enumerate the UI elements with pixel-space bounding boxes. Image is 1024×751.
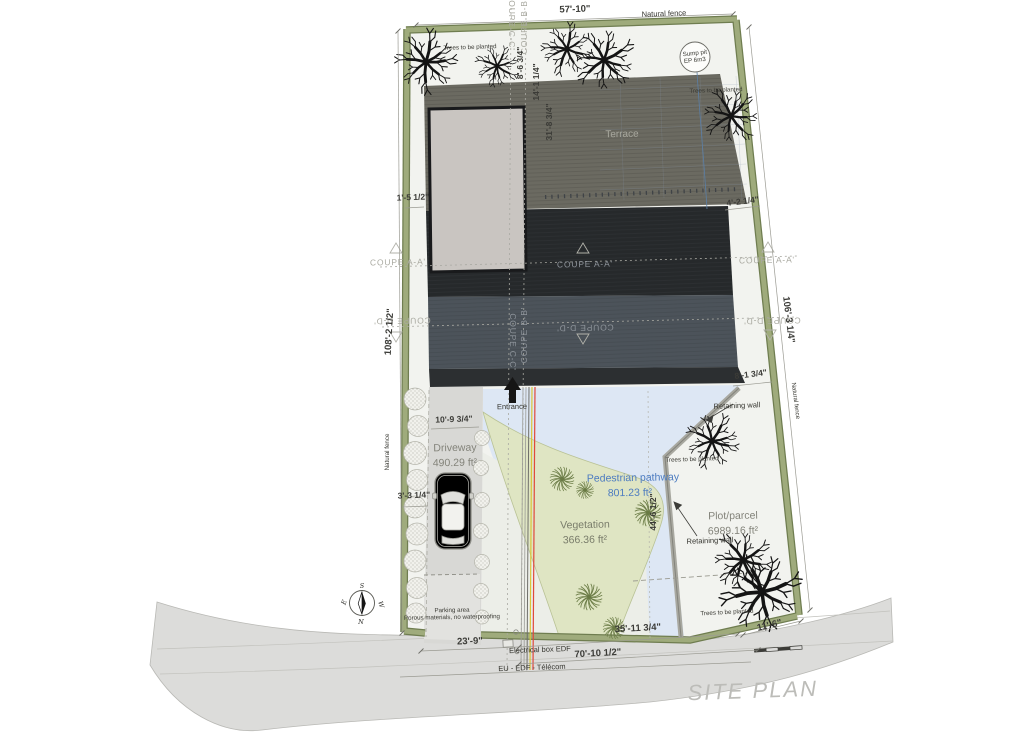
dim-driveway-width: 10'-9 3/4" xyxy=(435,413,473,424)
coupe-aa-right-label: COUPE A-A' xyxy=(739,255,795,266)
pathway-name-label: Pedestrian pathway xyxy=(587,471,680,485)
coupe-cc-top-label: COUPE C-C' xyxy=(507,0,517,51)
dim-driveway-side: 3'-3 1/4" xyxy=(397,489,430,500)
compass-rose: S N E W xyxy=(339,582,386,626)
pathway-area-label: 801.23 ft² xyxy=(608,487,653,500)
coupe-bb-mid-label: COUPE B-B' xyxy=(519,307,529,363)
coupe-cc-mid-label: COUPE C-C' xyxy=(508,313,518,370)
compass-east: E xyxy=(339,598,349,606)
retaining-wall-lower-label: Retaining wall xyxy=(686,535,733,546)
dim-top-width: 57'-10" xyxy=(559,3,590,15)
driveway-area-label: 490.29 ft² xyxy=(433,457,478,470)
retaining-wall-upper-label: Retaining wall xyxy=(713,400,760,411)
skylight xyxy=(429,107,526,272)
plot-name-label: Plot/parcel xyxy=(708,510,758,523)
page-title: SITE PLAN xyxy=(687,676,818,706)
dim-terrace-offset-b: 14'-1 1/4" xyxy=(531,63,541,100)
entrance-label: Entrance xyxy=(497,402,527,412)
coupe-bb-top-label: COUPE B-B' xyxy=(519,0,529,54)
natural-fence-left-label: Natural fence xyxy=(384,433,391,470)
coupe-aa-left-label: COUPE A-A' xyxy=(370,257,426,268)
dim-terrace-depth: 31'-8 3/4" xyxy=(544,103,554,140)
vegetation-name-label: Vegetation xyxy=(560,519,610,532)
terrace-label: Terrace xyxy=(605,129,639,141)
vegetation-area-label: 366.36 ft² xyxy=(563,534,608,547)
site-plan-canvas: S N E W 57'-10" Natural fence Trees to b… xyxy=(0,0,1024,751)
driveway-name-label: Driveway xyxy=(433,442,477,455)
dim-left-height: 108'-2 1/2" xyxy=(383,308,396,355)
coupe-aa-center-label: COUPE A-A' xyxy=(557,259,613,270)
compass-north: N xyxy=(357,618,364,626)
compass-south: S xyxy=(360,582,365,590)
natural-fence-top-label: Natural fence xyxy=(641,8,686,19)
dim-bottom-left: 23'-9" xyxy=(457,636,483,648)
car xyxy=(433,473,474,549)
natural-fence-right-label: Natural fence xyxy=(790,382,802,420)
compass-west: W xyxy=(376,600,386,610)
site-plan-drawing: S N E W 57'-10" Natural fence Trees to b… xyxy=(0,0,1024,751)
coupe-dd-center-label: COUPE D-D' xyxy=(556,323,613,334)
dim-parcel-height: 44'-6 1/2" xyxy=(648,493,658,530)
coupe-dd-left-label: COUPE D-D' xyxy=(373,316,430,327)
dim-fence-gap: 1'-5 1/2" xyxy=(396,191,429,202)
dim-terrace-offset-a: 8'-6 3/4" xyxy=(515,47,525,80)
